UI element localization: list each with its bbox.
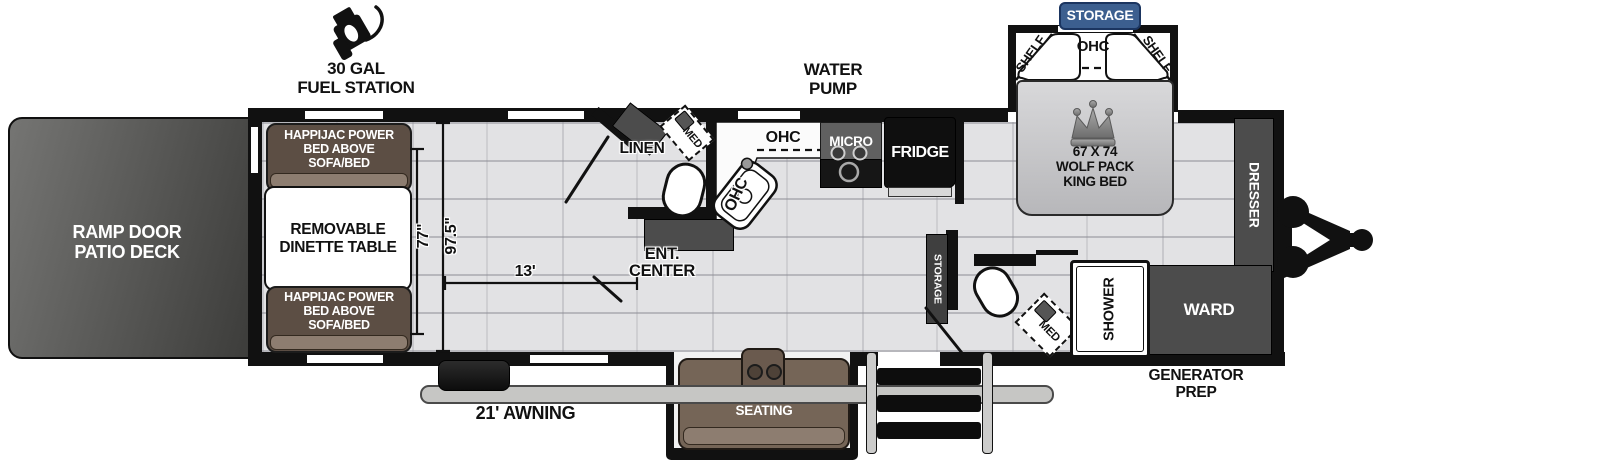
step-tread — [877, 395, 981, 412]
ramp-hinge-gap — [251, 127, 258, 173]
water-pump-label: WATER PUMP — [779, 60, 887, 98]
bath-storage-cabinet: STORAGE — [926, 234, 948, 324]
sofa-label: SOFA/BED — [268, 318, 410, 332]
ramp-door-label: RAMP DOOR PATIO DECK — [18, 222, 236, 262]
dim-13: 13' — [495, 263, 555, 281]
bath-wall — [974, 254, 1036, 266]
sofa-back-cushion — [683, 427, 845, 445]
sofa-label: SOFA/BED — [268, 156, 410, 170]
step-tread — [877, 422, 981, 439]
hitch-icon — [1277, 196, 1373, 278]
sofa-bed-top: HAPPIJAC POWER BED ABOVE SOFA/BED — [266, 123, 412, 192]
window — [738, 111, 800, 119]
step-rail — [866, 352, 877, 454]
bath-wall — [1036, 250, 1078, 255]
exterior-storage-compartment — [438, 360, 510, 391]
bath-wall — [706, 110, 716, 218]
dim-77: 77" — [415, 206, 433, 266]
sofa-bed-bottom: HAPPIJAC POWER BED ABOVE SOFA/BED — [266, 286, 412, 353]
cupholder — [747, 364, 763, 380]
sofa-label: BED ABOVE — [268, 142, 410, 156]
window — [508, 111, 584, 119]
sofa-label: BED ABOVE — [268, 304, 410, 318]
window — [307, 355, 383, 363]
ent-center-label: ENT. CENTER — [606, 246, 718, 281]
cooktop — [820, 159, 882, 188]
shower-pan: SHOWER — [1076, 266, 1144, 352]
refrigerator: FRIDGE — [884, 117, 956, 188]
bedroom-tv-wall — [955, 122, 964, 204]
sofa-cushion — [270, 335, 408, 350]
cupholder — [766, 364, 782, 380]
fuel-station-label: 30 GAL — [300, 59, 412, 78]
window — [530, 355, 608, 363]
awning-label: 21' AWNING — [438, 403, 613, 423]
bath-wall — [628, 207, 718, 219]
bed-type-label: KING BED — [1018, 174, 1172, 189]
sofa-label: HAPPIJAC POWER — [268, 290, 410, 304]
dim-97-5: 97.5" — [443, 206, 461, 266]
bed-name-label: WOLF PACK — [1018, 159, 1172, 174]
step-rail — [982, 352, 993, 454]
fuel-station-label2: FUEL STATION — [288, 78, 424, 97]
dresser: DRESSER — [1234, 118, 1274, 272]
shower: SHOWER — [1070, 260, 1150, 358]
rv-floorplan: RAMP DOOR PATIO DECK — [0, 0, 1600, 472]
wardrobe: WARD — [1146, 265, 1272, 355]
removable-dinette-table: REMOVABLE DINETTE TABLE — [264, 186, 412, 291]
storage-badge: STORAGE — [1059, 2, 1141, 30]
window — [305, 111, 383, 119]
linen-label: LINEN — [608, 140, 676, 157]
king-bed: 67 X 74 WOLF PACK KING BED — [1016, 80, 1174, 216]
microwave: MICRO — [820, 122, 882, 161]
step-tread — [877, 368, 981, 385]
fuel-pump-icon — [321, 4, 382, 61]
sofa-label: HAPPIJAC POWER — [268, 128, 410, 142]
med-label: MED — [678, 123, 705, 152]
bed-size-label: 67 X 74 — [1018, 144, 1172, 159]
generator-prep-label: GENERATOR PREP — [1116, 367, 1276, 402]
fridge-vent — [888, 187, 952, 197]
ohc-label: OHC — [758, 129, 808, 147]
bed-ohc-label: OHC — [1070, 39, 1116, 56]
